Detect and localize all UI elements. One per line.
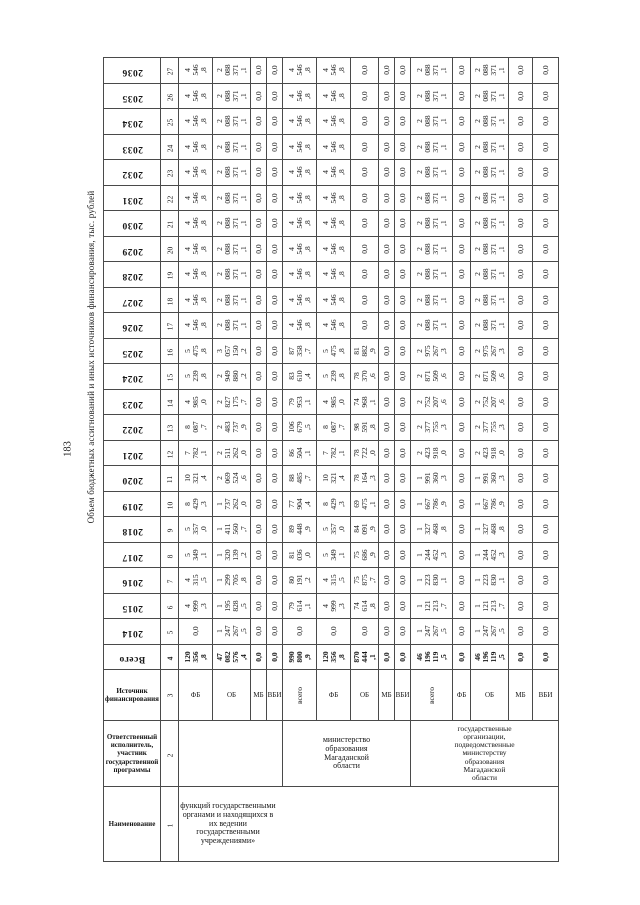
data-cell: 0,0 [351, 262, 379, 288]
data-cell: 2 088 371 ,1 [411, 109, 453, 135]
year-label-cell: 2032 [104, 160, 161, 186]
data-cell: 2 483 737 ,9 [213, 415, 251, 441]
data-cell: 0,0 [379, 491, 395, 517]
year-label-cell: 2018 [104, 517, 161, 543]
data-cell: 0,0 [351, 109, 379, 135]
data-cell: 0,0 [509, 185, 533, 211]
data-value: 0,0 [255, 597, 263, 614]
data-value: 0,0 [458, 164, 466, 181]
data-value: 2 423 918 ,0 [416, 444, 448, 461]
data-value: 0,0 [458, 189, 466, 206]
data-value: 1 667 786 ,9 [474, 495, 506, 512]
data-cell: 0,0 [395, 185, 411, 211]
data-cell: 4 315 ,5 [317, 568, 351, 594]
data-cell: 1 223 830 ,1 [411, 568, 453, 594]
table-row: Всего4120 356 ,847 082 576 ,40,00,0990 8… [104, 644, 559, 670]
table-row: 2036274 546 ,82 088 371 ,10,00,04 546 ,8… [104, 58, 559, 84]
year-label: 2036 [122, 67, 143, 77]
data-value: 0,0 [271, 521, 279, 538]
data-cell: 106 679 ,5 [283, 415, 317, 441]
table-row: 2034254 546 ,82 088 371 ,10,00,04 546 ,8… [104, 109, 559, 135]
data-cell: 0,0 [251, 619, 267, 645]
data-cell: 0,0 [267, 619, 283, 645]
data-value: 2 088 371 ,1 [416, 164, 448, 181]
colnum-cell: 10 [161, 491, 179, 517]
data-cell: 1 327 468 ,8 [471, 517, 509, 543]
data-value: 0,0 [542, 572, 550, 589]
data-cell: 0,0 [533, 313, 559, 339]
data-cell: 0,0 [395, 364, 411, 390]
data-cell: 4 546 ,8 [283, 262, 317, 288]
colnum: 2 [165, 753, 174, 757]
data-cell: 4 546 ,8 [317, 287, 351, 313]
data-value: 4 546 ,8 [288, 138, 312, 155]
data-cell: 0,0 [267, 262, 283, 288]
data-value: 5 357 ,0 [322, 521, 346, 538]
data-value: 0,0 [458, 368, 466, 385]
data-value: 2 088 371 ,1 [216, 317, 248, 334]
data-value: 0,0 [271, 317, 279, 334]
data-cell: 0,0 [395, 83, 411, 109]
source-cell: МБ [251, 670, 267, 721]
data-cell: 0,0 [267, 593, 283, 619]
data-value: 2 088 371 ,1 [474, 189, 506, 206]
data-value: 0,0 [255, 444, 263, 461]
data-value: 0,0 [361, 240, 369, 257]
data-cell: 0,0 [509, 338, 533, 364]
data-cell: 5 349 ,1 [179, 542, 213, 568]
data-cell: 4 546 ,8 [283, 313, 317, 339]
colnum: 17 [165, 323, 174, 331]
data-cell: 0,0 [509, 287, 533, 313]
data-value: 4 546 ,8 [288, 240, 312, 257]
year-label: 2031 [122, 195, 143, 205]
year-label-cell: 2024 [104, 364, 161, 390]
data-value: 0,0 [399, 342, 407, 359]
data-value: 2 088 371 ,1 [416, 240, 448, 257]
data-cell: 0,0 [251, 491, 267, 517]
data-value: 0,0 [255, 470, 263, 487]
data-value: 1 991 360 ,3 [416, 470, 448, 487]
data-value: 0,0 [255, 393, 263, 410]
data-cell: 0,0 [179, 619, 213, 645]
data-value: 1 121 213 ,7 [416, 597, 448, 614]
executor-block3-cell: государственные организации, подведомств… [411, 721, 559, 787]
data-cell: 0,0 [395, 389, 411, 415]
data-cell: 74 968 ,1 [351, 389, 379, 415]
data-cell: 0,0 [251, 568, 267, 594]
data-cell: 0,0 [453, 568, 471, 594]
data-value: 0,0 [383, 291, 391, 308]
data-value: 0,0 [542, 393, 550, 410]
data-cell: 0,0 [533, 364, 559, 390]
data-value: 2 088 371 ,1 [474, 317, 506, 334]
data-value: 4 546 ,8 [288, 266, 312, 283]
data-value: 2 088 371 ,1 [474, 113, 506, 130]
data-value: 5 475 ,8 [322, 342, 346, 359]
data-cell: 81 036 ,0 [283, 542, 317, 568]
data-cell: 4 546 ,8 [179, 58, 213, 84]
table-row: 2025165 475 ,83 057 150 ,20,00,087 358 ,… [104, 338, 559, 364]
data-cell: 0,0 [395, 542, 411, 568]
data-value: 2 975 267 ,3 [416, 342, 448, 359]
colnum: 15 [165, 374, 174, 382]
year-label-cell: 2029 [104, 236, 161, 262]
data-cell: 3 057 150 ,2 [213, 338, 251, 364]
data-cell: 2 088 371 ,1 [213, 83, 251, 109]
data-cell: 4 999 ,3 [317, 593, 351, 619]
data-cell: 2 423 918 ,0 [471, 440, 509, 466]
data-value: 0,0 [399, 521, 407, 538]
year-label: 2028 [122, 271, 143, 281]
table-row: 2022138 087 ,72 483 737 ,90,00,0106 679 … [104, 415, 559, 441]
data-cell: 0,0 [509, 262, 533, 288]
data-value: 4 315 ,5 [184, 572, 208, 589]
table-row: 201450,01 247 267 ,50,00,00,00,00,00,00,… [104, 619, 559, 645]
data-cell: 4 546 ,8 [317, 83, 351, 109]
data-value: 0,0 [255, 164, 263, 181]
data-cell: 2 088 371 ,1 [213, 262, 251, 288]
data-cell: 0,0 [379, 568, 395, 594]
data-value: 0,0 [383, 572, 391, 589]
year-label: 2016 [122, 577, 143, 587]
year-label-cell: 2025 [104, 338, 161, 364]
colnum-cell: 2 [161, 721, 179, 787]
data-value: 0,0 [271, 215, 279, 232]
data-cell: 1 223 830 ,1 [471, 568, 509, 594]
data-value: 0,0 [458, 240, 466, 257]
data-cell: 0,0 [509, 644, 533, 670]
data-cell: 0,0 [379, 542, 395, 568]
data-cell: 2 377 755 ,3 [471, 415, 509, 441]
data-value: 0,0 [399, 470, 407, 487]
source-cell: ФБ [453, 670, 471, 721]
year-label-cell: 2027 [104, 287, 161, 313]
data-value: 8 429 ,3 [184, 495, 208, 512]
data-value: 0,0 [271, 342, 279, 359]
data-cell: 0,0 [251, 83, 267, 109]
data-value: 2 752 207 ,6 [474, 393, 506, 410]
data-value: 0,0 [458, 648, 466, 665]
data-value: 0,0 [361, 87, 369, 104]
data-cell: 0,0 [351, 313, 379, 339]
data-cell: 0,0 [395, 262, 411, 288]
data-value: 0,0 [399, 189, 407, 206]
data-cell: 0,0 [267, 466, 283, 492]
data-value: 74 968 ,1 [353, 393, 377, 410]
data-value: 0,0 [296, 623, 304, 640]
data-cell: 4 546 ,8 [283, 83, 317, 109]
colnum-cell: 9 [161, 517, 179, 543]
data-cell: 0,0 [379, 83, 395, 109]
source-header-label: Источник финансирования [104, 686, 160, 704]
data-value: 0,0 [517, 215, 525, 232]
data-value: 2 088 371 ,1 [474, 240, 506, 257]
data-value: 0,0 [542, 470, 550, 487]
data-value: 1 411 560 ,7 [216, 521, 248, 538]
data-value: 2 088 371 ,1 [474, 138, 506, 155]
data-cell: 0,0 [251, 58, 267, 84]
year-label: 2030 [122, 220, 143, 230]
data-cell: 0,0 [251, 517, 267, 543]
year-label-cell: 2036 [104, 58, 161, 84]
data-cell: 0,0 [453, 109, 471, 135]
data-value: 5 475 ,8 [184, 342, 208, 359]
data-value: 0,0 [399, 444, 407, 461]
data-cell: 0,0 [533, 415, 559, 441]
data-value: 4 546 ,8 [288, 62, 312, 79]
year-label-cell: 2033 [104, 134, 161, 160]
data-value: 0,0 [255, 342, 263, 359]
data-value: 0,0 [383, 266, 391, 283]
data-cell: 4 546 ,8 [317, 160, 351, 186]
data-cell: 1 244 452 ,3 [411, 542, 453, 568]
year-label-cell: 2030 [104, 211, 161, 237]
year-label: 2029 [122, 246, 143, 256]
colnum-cell: 8 [161, 542, 179, 568]
data-value: 75 686 ,9 [353, 546, 377, 563]
data-cell: 4 546 ,8 [317, 185, 351, 211]
data-cell: 0,0 [395, 415, 411, 441]
data-cell: 4 546 ,8 [179, 134, 213, 160]
data-cell: 2 088 371 ,1 [471, 313, 509, 339]
data-cell: 0,0 [509, 134, 533, 160]
data-cell: 0,0 [267, 160, 283, 186]
data-value: 8 087 ,7 [322, 419, 346, 436]
data-value: 0,0 [542, 164, 550, 181]
data-value: 0,0 [383, 419, 391, 436]
data-cell: 0,0 [379, 415, 395, 441]
data-value: 4 546 ,8 [288, 291, 312, 308]
data-value: 0,0 [542, 546, 550, 563]
data-cell: 0,0 [453, 389, 471, 415]
data-value: 0,0 [383, 648, 391, 665]
data-value: 0,0 [458, 393, 466, 410]
data-value: 0,0 [458, 266, 466, 283]
data-value: 0,0 [458, 62, 466, 79]
data-cell: 2 088 371 ,1 [411, 211, 453, 237]
data-value: 0,0 [271, 623, 279, 640]
data-cell: 5 239 ,8 [179, 364, 213, 390]
data-cell: 69 475 ,1 [351, 491, 379, 517]
data-cell: 0,0 [395, 236, 411, 262]
data-value: 0,0 [517, 597, 525, 614]
data-value: 2 088 371 ,1 [474, 164, 506, 181]
data-value: 4 546 ,8 [184, 189, 208, 206]
data-value: 4 546 ,8 [288, 189, 312, 206]
data-value: 0,0 [255, 495, 263, 512]
colnum-cell: 14 [161, 389, 179, 415]
colnum-cell: 24 [161, 134, 179, 160]
data-cell: 0,0 [453, 466, 471, 492]
page-number: 183 [63, 441, 74, 457]
data-cell: 1 991 360 ,3 [411, 466, 453, 492]
data-value: 0,0 [383, 623, 391, 640]
data-cell: 0,0 [251, 313, 267, 339]
data-cell: 0,0 [453, 83, 471, 109]
data-value: 0,0 [542, 444, 550, 461]
header-bands: Источник финансирования 3 ФБ ОБ МБ ВБИ в… [104, 670, 559, 862]
data-cell: 78 370 ,6 [351, 364, 379, 390]
data-cell: 5 357 ,0 [317, 517, 351, 543]
table-row: 201674 315 ,51 299 705 ,80,00,080 191 ,2… [104, 568, 559, 594]
executor-block2-cell: министерство образования Магаданской обл… [283, 721, 411, 787]
data-cell: 0,0 [453, 619, 471, 645]
data-cell: 0,0 [267, 542, 283, 568]
data-value: 2 088 371 ,1 [416, 87, 448, 104]
data-value: 78 722 ,0 [353, 444, 377, 461]
data-value: 0,0 [517, 444, 525, 461]
data-cell: 2 088 371 ,1 [411, 262, 453, 288]
data-cell: 1 737 262 ,0 [213, 491, 251, 517]
data-value: 2 377 755 ,3 [474, 419, 506, 436]
data-cell: 0,0 [395, 619, 411, 645]
data-cell: 0,0 [251, 262, 267, 288]
data-cell: 4 315 ,5 [179, 568, 213, 594]
colnum: 8 [165, 554, 174, 558]
data-value: 1 223 830 ,1 [474, 572, 506, 589]
data-value: 1 737 262 ,0 [216, 495, 248, 512]
data-value: 5 349 ,1 [184, 546, 208, 563]
data-value: 0,0 [361, 215, 369, 232]
year-label-cell: 2035 [104, 83, 161, 109]
data-value: 0,0 [271, 419, 279, 436]
data-cell: 2 088 371 ,1 [213, 211, 251, 237]
data-value: 2 088 371 ,1 [416, 62, 448, 79]
source-cell: ВБИ [395, 670, 411, 721]
data-value: 0,0 [458, 87, 466, 104]
data-cell: 0,0 [379, 313, 395, 339]
data-value: 0,0 [383, 113, 391, 130]
data-cell: 0,0 [453, 262, 471, 288]
data-value: 0,0 [255, 546, 263, 563]
data-value: 0,0 [517, 138, 525, 155]
data-value: 4 999 ,3 [322, 597, 346, 614]
data-value: 1 195 828 ,5 [216, 597, 248, 614]
data-value: 0,0 [255, 266, 263, 283]
data-value: 0,0 [399, 138, 407, 155]
colnum: 11 [165, 476, 174, 483]
data-value: 0,0 [458, 138, 466, 155]
data-cell: 1 299 705 ,8 [213, 568, 251, 594]
year-label-cell: 2023 [104, 389, 161, 415]
data-value: 0,0 [255, 87, 263, 104]
year-label: 2025 [122, 348, 143, 358]
data-value: 2 088 371 ,1 [474, 215, 506, 232]
data-value: 4 315 ,5 [322, 572, 346, 589]
data-value: 2 377 755 ,3 [416, 419, 448, 436]
data-value: 1 327 468 ,8 [474, 521, 506, 538]
data-cell: 2 069 524 ,6 [213, 466, 251, 492]
data-value: 4 546 ,8 [184, 164, 208, 181]
data-value: 2 423 918 ,0 [474, 444, 506, 461]
data-value: 0,0 [517, 521, 525, 538]
year-label: 2021 [122, 450, 143, 460]
data-cell: 0,0 [351, 211, 379, 237]
data-cell: 0,0 [453, 287, 471, 313]
data-cell: 0,0 [395, 517, 411, 543]
data-cell: 0,0 [509, 83, 533, 109]
colnum: 24 [165, 145, 174, 153]
data-cell: 74 614 ,8 [351, 593, 379, 619]
data-value: 87 358 ,7 [288, 342, 312, 359]
colnum: 23 [165, 170, 174, 178]
data-cell: 0,0 [395, 466, 411, 492]
colnum-cell: 27 [161, 58, 179, 84]
year-label-cell: 2026 [104, 313, 161, 339]
data-cell: 0,0 [267, 517, 283, 543]
data-cell: 0,0 [533, 160, 559, 186]
data-cell: 0,0 [453, 517, 471, 543]
data-value: 0,0 [399, 623, 407, 640]
data-value: 0,0 [361, 113, 369, 130]
data-cell: 4 546 ,8 [317, 134, 351, 160]
data-cell: 79 614 ,1 [283, 593, 317, 619]
source-cell: МБ [509, 670, 533, 721]
data-value: 0,0 [542, 189, 550, 206]
data-value: 0,0 [399, 317, 407, 334]
data-value: 2 088 371 ,1 [416, 189, 448, 206]
data-value: 2 088 371 ,1 [216, 87, 248, 104]
data-cell: 4 546 ,8 [283, 109, 317, 135]
data-value: 0,0 [458, 291, 466, 308]
data-cell: 5 239 ,8 [317, 364, 351, 390]
data-value: 0,0 [458, 521, 466, 538]
year-label: 2018 [122, 526, 143, 536]
year-label-cell: 2028 [104, 262, 161, 288]
data-value: 0,0 [458, 317, 466, 334]
data-cell: 46 196 119 ,5 [471, 644, 509, 670]
data-value: 8 087 ,7 [184, 419, 208, 436]
data-cell: 2 088 371 ,1 [471, 211, 509, 237]
data-cell: 4 999 ,3 [179, 593, 213, 619]
data-value: 0,0 [542, 62, 550, 79]
data-cell: 0,0 [453, 491, 471, 517]
data-cell: 0,0 [379, 160, 395, 186]
data-cell: 0,0 [533, 109, 559, 135]
data-cell: 2 088 371 ,1 [471, 83, 509, 109]
data-value: 4 546 ,8 [288, 113, 312, 130]
data-value: 2 088 371 ,1 [416, 266, 448, 283]
data-value: 1 247 267 ,5 [216, 623, 248, 640]
data-cell: 77 904 ,4 [283, 491, 317, 517]
data-cell: 0,0 [453, 313, 471, 339]
data-cell: 0,0 [267, 568, 283, 594]
data-value: 0,0 [271, 597, 279, 614]
data-value: 0,0 [271, 240, 279, 257]
data-cell: 0,0 [379, 134, 395, 160]
data-value: 0,0 [542, 495, 550, 512]
colnum: 25 [165, 119, 174, 127]
data-cell: 5 357 ,0 [179, 517, 213, 543]
data-value: 0,0 [361, 62, 369, 79]
data-cell: 0,0 [267, 415, 283, 441]
data-cell: 0,0 [267, 338, 283, 364]
data-cell: 2 088 371 ,1 [471, 160, 509, 186]
table-row: 2033244 546 ,82 088 371 ,10,00,04 546 ,8… [104, 134, 559, 160]
data-value: 0,0 [255, 648, 263, 665]
colnum-cell: 18 [161, 287, 179, 313]
year-label-cell: Всего [104, 644, 161, 670]
year-label-cell: 2014 [104, 619, 161, 645]
data-cell: 2 752 207 ,6 [471, 389, 509, 415]
data-value: 5 357 ,0 [184, 521, 208, 538]
colnum: 22 [165, 196, 174, 204]
data-cell: 0,0 [509, 440, 533, 466]
data-cell: 0,0 [351, 236, 379, 262]
data-value: 81 036 ,0 [288, 546, 312, 563]
data-value: 1 299 705 ,8 [216, 572, 248, 589]
